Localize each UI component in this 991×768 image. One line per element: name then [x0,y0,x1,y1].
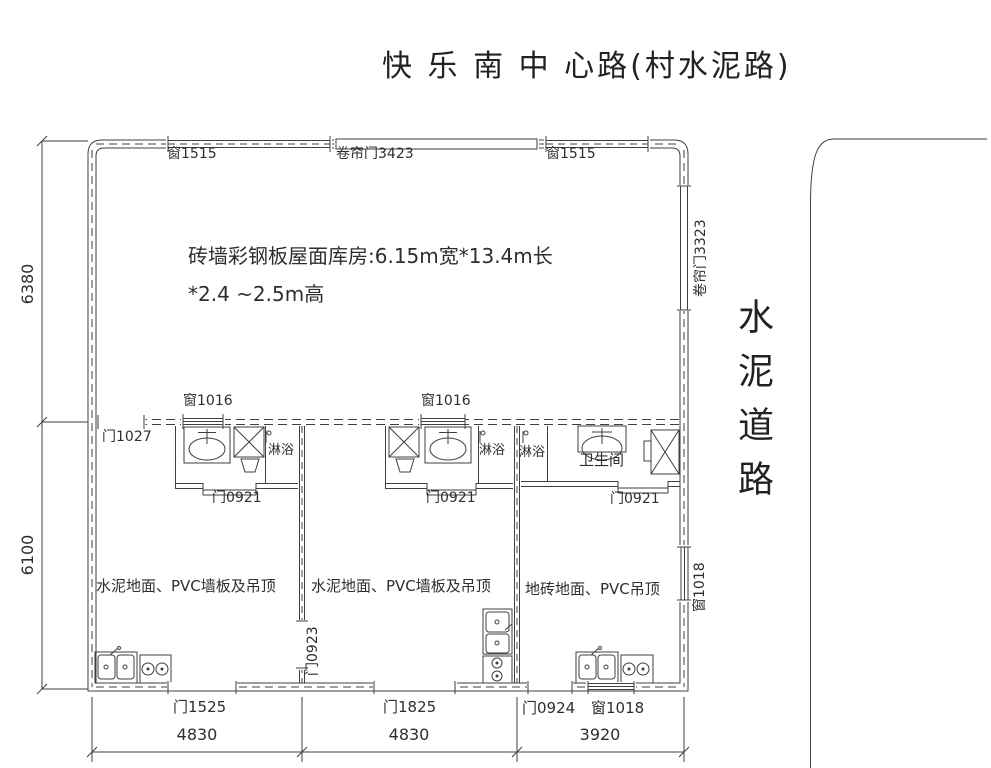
door-1825-label: 门1825 [383,700,436,715]
window-1016-b-label: 窗1016 [421,394,471,408]
toilet-icon [425,427,471,463]
stove-icon [483,656,512,683]
window-1515-left-label: 窗1515 [167,147,217,161]
kitchen-middle [483,609,512,683]
door-0921-right-label: 门0921 [610,492,660,506]
door-0923-label: 门0923 [306,614,320,676]
window-1018-side-label: 窗1018 [693,548,707,612]
dim-3920-right: 3920 [560,727,640,743]
washing-unit-icon [644,430,679,474]
door-0921-left-label: 门0921 [212,491,262,505]
shower-mid-label: 淋浴 [479,444,505,457]
rolling-door-3423-label: 卷帘门3423 [336,147,414,161]
sink-icon [95,647,137,684]
shower-head-icon [266,431,271,443]
dim-6100: 6100 [20,514,36,596]
side-window-1018 [677,545,691,602]
window-1016-a-label: 窗1016 [183,394,233,408]
left-room-finish-label: 水泥地面、PVC墙板及吊顶 [96,579,276,594]
bottom-door-0924 [527,681,573,694]
left-dimension [37,136,88,694]
middle-wall-window-a [181,414,225,430]
washbasin-icon [234,427,264,472]
bathroom-middle [385,426,513,495]
cement-road-label: 水泥道路 [734,298,770,514]
side-rolling-door [677,185,691,311]
exterior-wall [88,140,688,691]
kitchen-left [95,647,171,684]
middle-wall-window-b [419,414,465,430]
sink-icon [576,647,618,684]
bottom-door-1525 [167,681,237,694]
middle-wall-door-1027 [97,414,146,430]
warehouse-desc-line1: 砖墙彩钢板屋面库房:6.15m宽*13.4m长 [188,246,553,266]
bottom-window-1018 [586,681,636,694]
window-1515-right-label: 窗1515 [546,147,596,161]
sink-icon [483,609,512,654]
warehouse-desc-line2: *2.4 ~2.5m高 [188,284,324,304]
stove-icon [140,655,171,683]
toilet-icon [184,427,230,463]
washbasin-icon [389,427,419,472]
kitchen-right [576,647,653,684]
shower-left-label: 淋浴 [268,444,294,457]
window-1018-bottom-label: 窗1018 [591,701,644,716]
shower-right-label: 淋浴 [519,446,545,459]
door-0924-label: 门0924 [522,701,575,716]
rolling-door-3323-label: 卷帘门3323 [694,209,708,297]
stove-icon [621,655,653,683]
dim-4830-left: 4830 [157,727,237,743]
shower-head-icon [480,431,485,443]
toilet-room-label: 卫生间 [579,453,624,468]
bathroom-left [175,426,298,495]
dim-4830-mid: 4830 [369,727,449,743]
shower-head-icon [523,431,528,443]
road-edge-line [811,139,988,768]
right-room-finish-label: 地砖地面、PVC吊顶 [525,582,660,597]
door-1525-label: 门1525 [173,700,226,715]
door-1027-label: 门1027 [102,430,152,444]
dim-6380: 6380 [20,243,36,325]
floor-plan-canvas: 快 乐 南 中 心路(村水泥路) 窗1515 卷帘门3423 窗1515 砖墙彩… [0,0,991,768]
floor-plan-linework [0,0,991,768]
door-0921-mid-label: 门0921 [426,491,476,505]
street-title: 快 乐 南 中 心路(村水泥路) [382,52,792,82]
middle-room-finish-label: 水泥地面、PVC墙板及吊顶 [311,579,491,594]
bottom-door-1825 [373,681,457,694]
